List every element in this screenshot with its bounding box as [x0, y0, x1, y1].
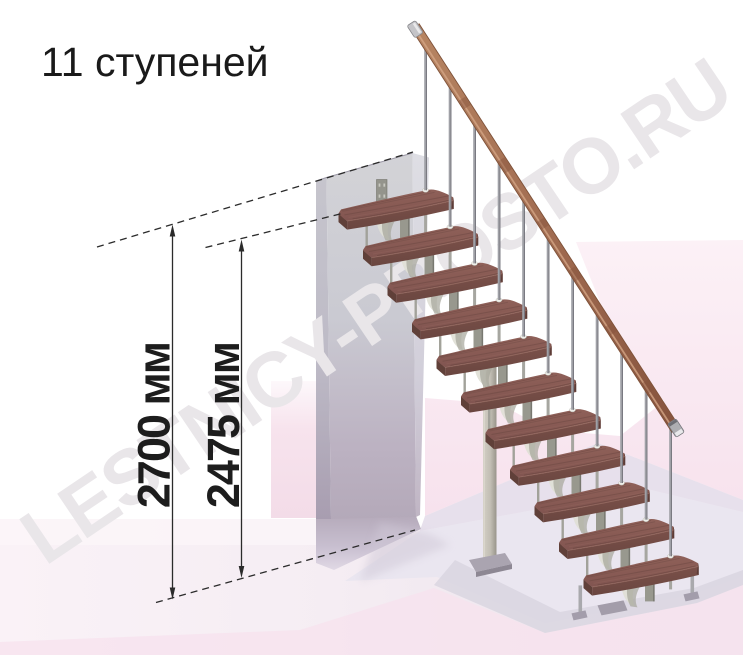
svg-text:2475 мм: 2475 мм — [198, 343, 249, 508]
svg-text:2700 мм: 2700 мм — [129, 343, 180, 508]
svg-text:11 ступеней: 11 ступеней — [41, 39, 269, 85]
